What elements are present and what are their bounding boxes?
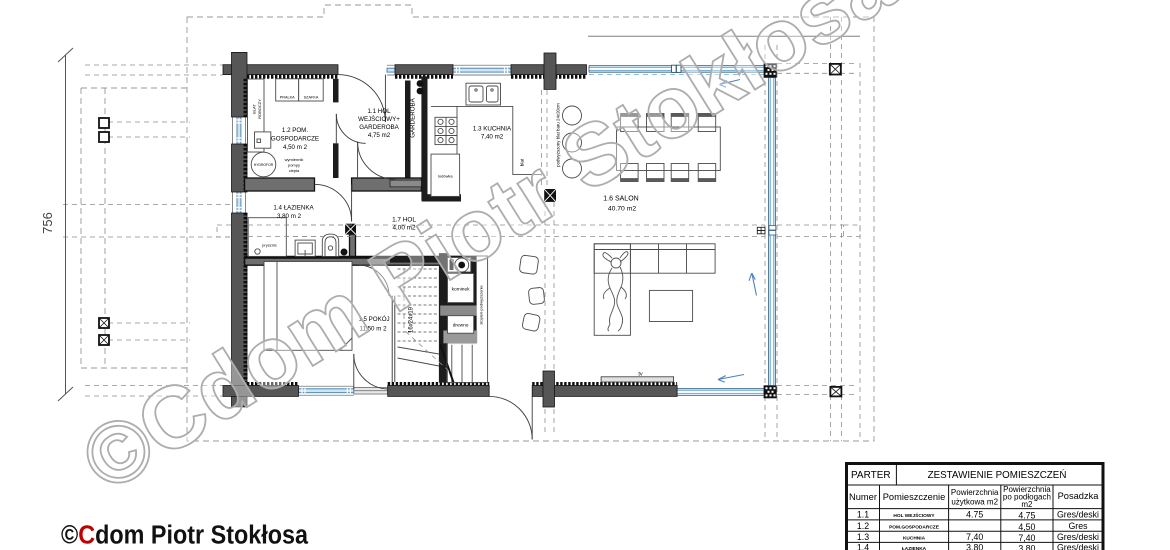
svg-text:3,80: 3,80 — [966, 543, 983, 550]
svg-text:pompy: pompy — [288, 163, 300, 168]
svg-text:4,50: 4,50 — [1018, 522, 1035, 532]
svg-text:Gres: Gres — [1068, 521, 1088, 531]
svg-text:Numer: Numer — [849, 492, 877, 502]
svg-text:1.2 POM.: 1.2 POM. — [282, 127, 308, 134]
svg-text:WEJŚCIOWY+: WEJŚCIOWY+ — [358, 115, 400, 123]
svg-text:PRALKA: PRALKA — [280, 96, 295, 100]
svg-text:1.2: 1.2 — [857, 521, 869, 531]
svg-text:4.75: 4.75 — [1018, 511, 1035, 521]
svg-text:Gres/deski: Gres/deski — [1057, 510, 1099, 520]
svg-text:wymiennik: wymiennik — [285, 157, 304, 162]
svg-text:PARTER: PARTER — [851, 470, 891, 481]
svg-text:POM.GOSPODARCZE: POM.GOSPODARCZE — [889, 524, 940, 530]
svg-text:ZESTAWIENIE POMIESZCZEŃ: ZESTAWIENIE POMIESZCZEŃ — [928, 470, 1067, 481]
svg-text:GARDEROBA: GARDEROBA — [359, 124, 399, 131]
svg-text:lodówka: lodówka — [438, 174, 453, 179]
svg-text:1.4: 1.4 — [857, 543, 869, 550]
svg-text:tv: tv — [638, 372, 643, 378]
svg-text:3,80 m 2: 3,80 m 2 — [277, 213, 302, 220]
svg-text:Posadzka: Posadzka — [1058, 491, 1100, 501]
svg-text:Powierzchnia: Powierzchnia — [951, 488, 999, 497]
svg-text:756: 756 — [40, 212, 55, 234]
svg-text:Pomieszczenie: Pomieszczenie — [883, 492, 946, 502]
svg-text:©Cdom Piotr Stokłosa: ©Cdom Piotr Stokłosa — [61, 522, 309, 550]
svg-text:SZAFKA: SZAFKA — [304, 96, 319, 100]
svg-text:40.70 m2: 40.70 m2 — [608, 206, 637, 213]
svg-text:stopień-podwyższenie: stopień-podwyższenie — [478, 285, 483, 325]
svg-text:4,75 m2: 4,75 m2 — [368, 132, 391, 139]
svg-text:KUCHNIA: KUCHNIA — [903, 536, 926, 542]
svg-text:BLAT: BLAT — [252, 104, 257, 114]
svg-text:3,80: 3,80 — [1018, 544, 1035, 550]
svg-text:GOSPODARCZE: GOSPODARCZE — [271, 136, 319, 143]
svg-text:1.3 KUCHNIA: 1.3 KUCHNIA — [473, 126, 512, 133]
svg-text:GARDEROBA: GARDEROBA — [410, 97, 417, 137]
svg-text:HOL WEJŚCIOWY: HOL WEJŚCIOWY — [893, 512, 935, 519]
svg-text:1.1: 1.1 — [857, 510, 869, 520]
svg-text:ROBOCZY: ROBOCZY — [257, 99, 262, 119]
svg-text:ŁAZIENKA: ŁAZIENKA — [902, 546, 927, 550]
svg-text:1.4 ŁAZIENKA: 1.4 ŁAZIENKA — [273, 205, 314, 212]
svg-text:HYDROFOR: HYDROFOR — [254, 163, 274, 167]
svg-text:4.75: 4.75 — [966, 510, 983, 520]
svg-text:drewno: drewno — [453, 323, 469, 329]
svg-text:1.1 HOL: 1.1 HOL — [367, 108, 391, 115]
svg-text:Gres/deski: Gres/deski — [1057, 543, 1099, 550]
svg-text:m2: m2 — [1021, 500, 1033, 509]
svg-text:użytkowa m2: użytkowa m2 — [951, 498, 998, 507]
svg-text:1.3: 1.3 — [857, 532, 869, 542]
svg-text:7,40: 7,40 — [1018, 533, 1035, 543]
svg-text:7,40 m2: 7,40 m2 — [481, 134, 504, 141]
svg-text:7,40: 7,40 — [966, 532, 983, 542]
svg-text:Gres/deski: Gres/deski — [1057, 532, 1099, 542]
svg-text:ciepła: ciepła — [289, 168, 300, 173]
svg-text:4,50 m 2: 4,50 m 2 — [283, 144, 308, 151]
svg-text:prysznic: prysznic — [262, 243, 277, 248]
